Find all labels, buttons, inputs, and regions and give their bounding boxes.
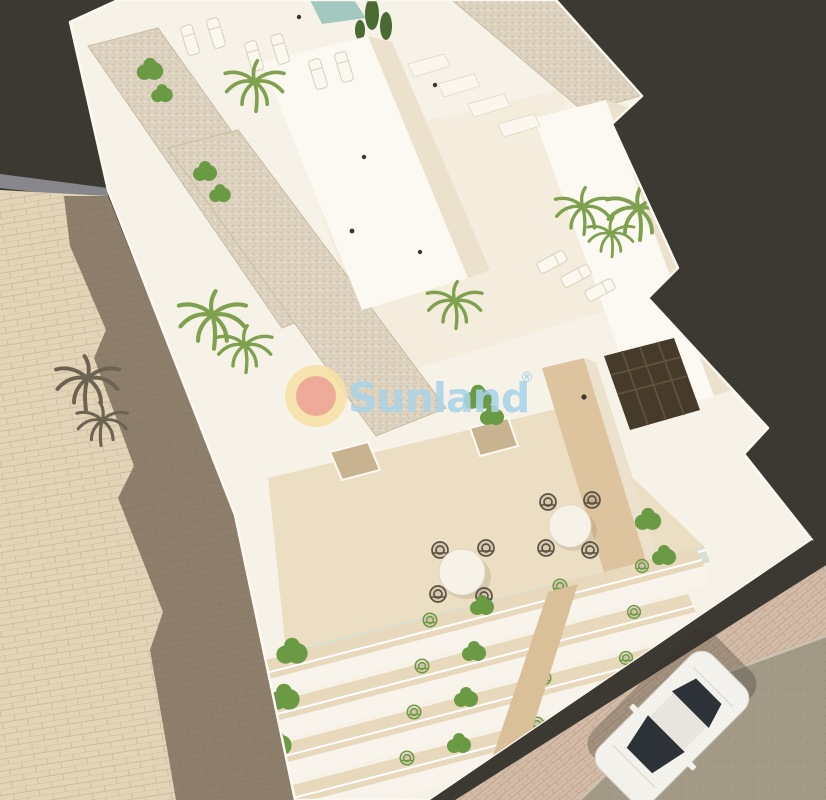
brand-text: Sunland bbox=[348, 374, 529, 422]
registered-mark: ® bbox=[520, 370, 534, 386]
terrace-chair bbox=[538, 540, 554, 556]
architectural-render: Sunland ® bbox=[0, 0, 826, 800]
terrace-chair bbox=[540, 494, 556, 510]
watermark: Sunland ® bbox=[285, 365, 534, 427]
terrace-chair bbox=[584, 492, 600, 508]
render-scene: Sunland ® bbox=[0, 0, 826, 800]
sun-icon bbox=[285, 365, 347, 427]
terrace-chair bbox=[430, 586, 446, 602]
terrace-chair bbox=[478, 540, 494, 556]
